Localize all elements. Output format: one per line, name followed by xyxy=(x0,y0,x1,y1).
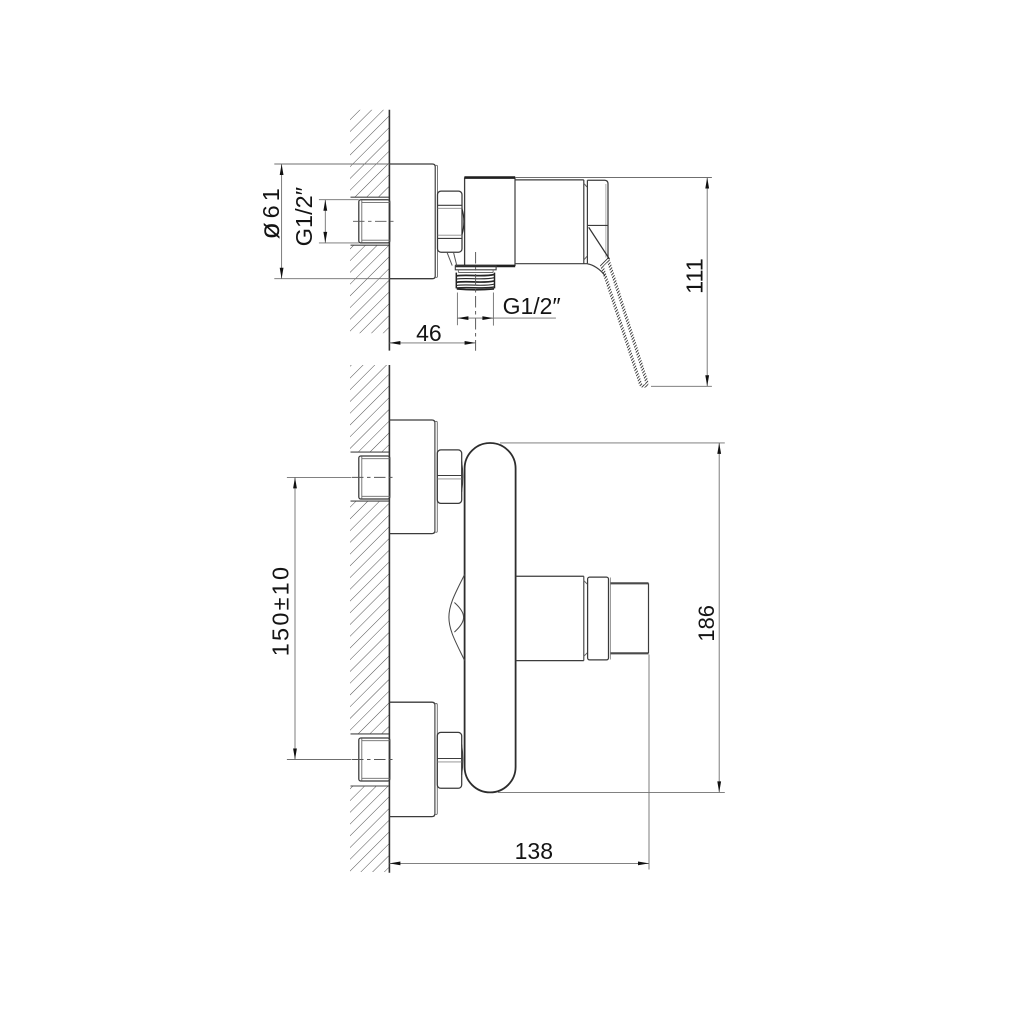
svg-text:46: 46 xyxy=(416,320,442,346)
svg-text:G1/2″: G1/2″ xyxy=(503,293,561,319)
svg-text:138: 138 xyxy=(515,838,553,864)
svg-text:186: 186 xyxy=(694,605,719,642)
svg-text:G1/2″: G1/2″ xyxy=(291,187,317,246)
svg-text:150±10: 150±10 xyxy=(267,565,293,656)
svg-text:ø61: ø61 xyxy=(254,184,285,239)
svg-text:111: 111 xyxy=(681,258,707,294)
